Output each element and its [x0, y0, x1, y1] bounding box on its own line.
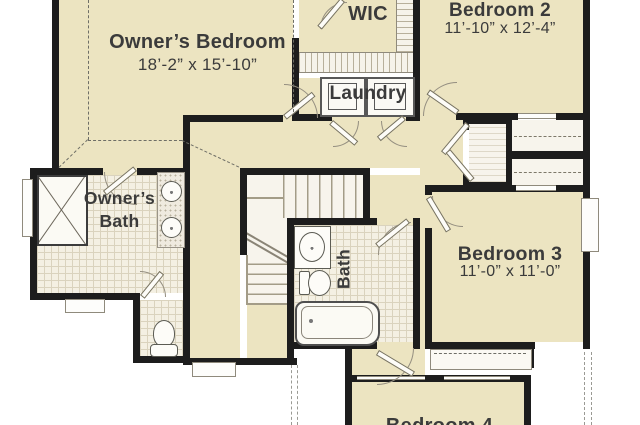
stair-treads	[283, 175, 363, 218]
stair-landing-line	[247, 197, 283, 199]
wall	[524, 375, 531, 425]
shower-x-line	[38, 177, 86, 245]
stair-edge	[247, 303, 287, 305]
wall	[413, 218, 420, 349]
wall	[287, 218, 377, 225]
floor-plan: Owner’s Bedroom 18’-2” x 15’-10” WIC Bed…	[0, 0, 640, 425]
wall	[425, 228, 432, 349]
room-label-wic: WIC	[333, 4, 403, 25]
closet-bifold-opening	[518, 113, 556, 119]
wall	[583, 0, 590, 198]
room-label-bedroom-3: Bedroom 3	[435, 244, 585, 264]
roof-line	[297, 365, 298, 425]
wall	[287, 349, 294, 365]
room-label-bedroom-4: Bedroom 4	[357, 416, 522, 425]
wall	[240, 168, 247, 255]
closet-rod	[514, 172, 581, 173]
bathtub-drain	[309, 319, 313, 323]
room-label-laundry: Laundry	[313, 84, 423, 104]
wall	[240, 168, 370, 175]
window	[192, 362, 236, 377]
room-label-bedroom-2: Bedroom 2	[430, 1, 570, 21]
hall-floor	[190, 168, 240, 358]
wall	[52, 0, 59, 175]
wall	[425, 185, 590, 192]
wall	[345, 349, 352, 425]
wall	[133, 293, 140, 363]
window	[22, 179, 33, 237]
roof-line	[291, 365, 292, 425]
bathtub	[295, 301, 380, 346]
wall	[287, 218, 294, 349]
toilet-tank	[150, 344, 178, 357]
room-label-owners-bath-line1: Owner’s	[62, 189, 177, 207]
room-dims-bedroom-2: 11’-10” x 12’-4”	[428, 21, 572, 38]
stair-edge	[246, 255, 248, 305]
wall	[363, 175, 370, 218]
tray-ceiling-line	[88, 140, 182, 141]
linen-closet-floor	[469, 124, 506, 182]
wall	[183, 115, 283, 122]
wall	[425, 342, 535, 349]
wall	[463, 118, 512, 124]
toilet	[153, 320, 175, 347]
wic-shelf	[299, 52, 413, 73]
room-dims-owners-bedroom: 18’-2” x 15’-10”	[80, 56, 315, 74]
hall-floor	[247, 305, 290, 358]
room-label-owners-bath-line2: Bath	[62, 212, 177, 230]
wall	[30, 168, 103, 175]
closet-bifold-opening	[516, 185, 556, 191]
room-dims-bedroom-3: 11’-0” x 11’-0”	[435, 264, 585, 281]
room-label-owners-bedroom: Owner’s Bedroom	[80, 32, 315, 53]
wall	[133, 356, 190, 363]
room-label-bath: Bath	[319, 242, 369, 297]
stair-treads	[247, 255, 287, 305]
window	[65, 299, 105, 313]
window-seat-line	[434, 353, 526, 354]
roof-line	[591, 352, 592, 425]
closet-rod	[514, 136, 581, 137]
wall	[425, 185, 432, 195]
cased-opening	[444, 376, 510, 380]
shower-stall	[37, 175, 88, 246]
wall	[512, 151, 590, 159]
roof-line	[584, 352, 585, 425]
